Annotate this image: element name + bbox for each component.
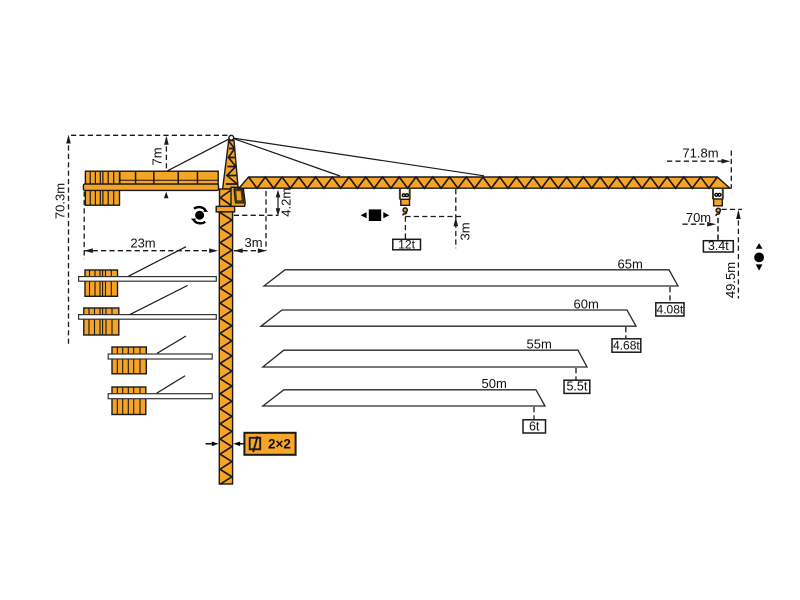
svg-text:5.5t: 5.5t xyxy=(566,380,587,394)
svg-text:12t: 12t xyxy=(398,237,416,251)
svg-text:65m: 65m xyxy=(618,256,643,271)
svg-text:50m: 50m xyxy=(482,376,507,391)
svg-text:70.3m: 70.3m xyxy=(53,183,68,219)
svg-text:3m: 3m xyxy=(244,235,262,250)
svg-text:4.08t: 4.08t xyxy=(657,302,684,316)
svg-text:3.4t: 3.4t xyxy=(708,239,729,253)
svg-text:3m: 3m xyxy=(457,222,472,240)
svg-text:49.5m: 49.5m xyxy=(723,262,738,298)
svg-text:55m: 55m xyxy=(527,336,552,351)
svg-text:23m: 23m xyxy=(130,236,155,251)
svg-text:71.8m: 71.8m xyxy=(682,146,718,161)
svg-text:4.68t: 4.68t xyxy=(613,339,640,353)
svg-text:60m: 60m xyxy=(574,296,599,311)
svg-text:7m: 7m xyxy=(150,147,165,165)
svg-text:4.2m: 4.2m xyxy=(279,188,294,217)
svg-text:2×2: 2×2 xyxy=(268,437,291,452)
svg-text:6t: 6t xyxy=(529,419,540,433)
svg-text:70m: 70m xyxy=(686,210,711,225)
